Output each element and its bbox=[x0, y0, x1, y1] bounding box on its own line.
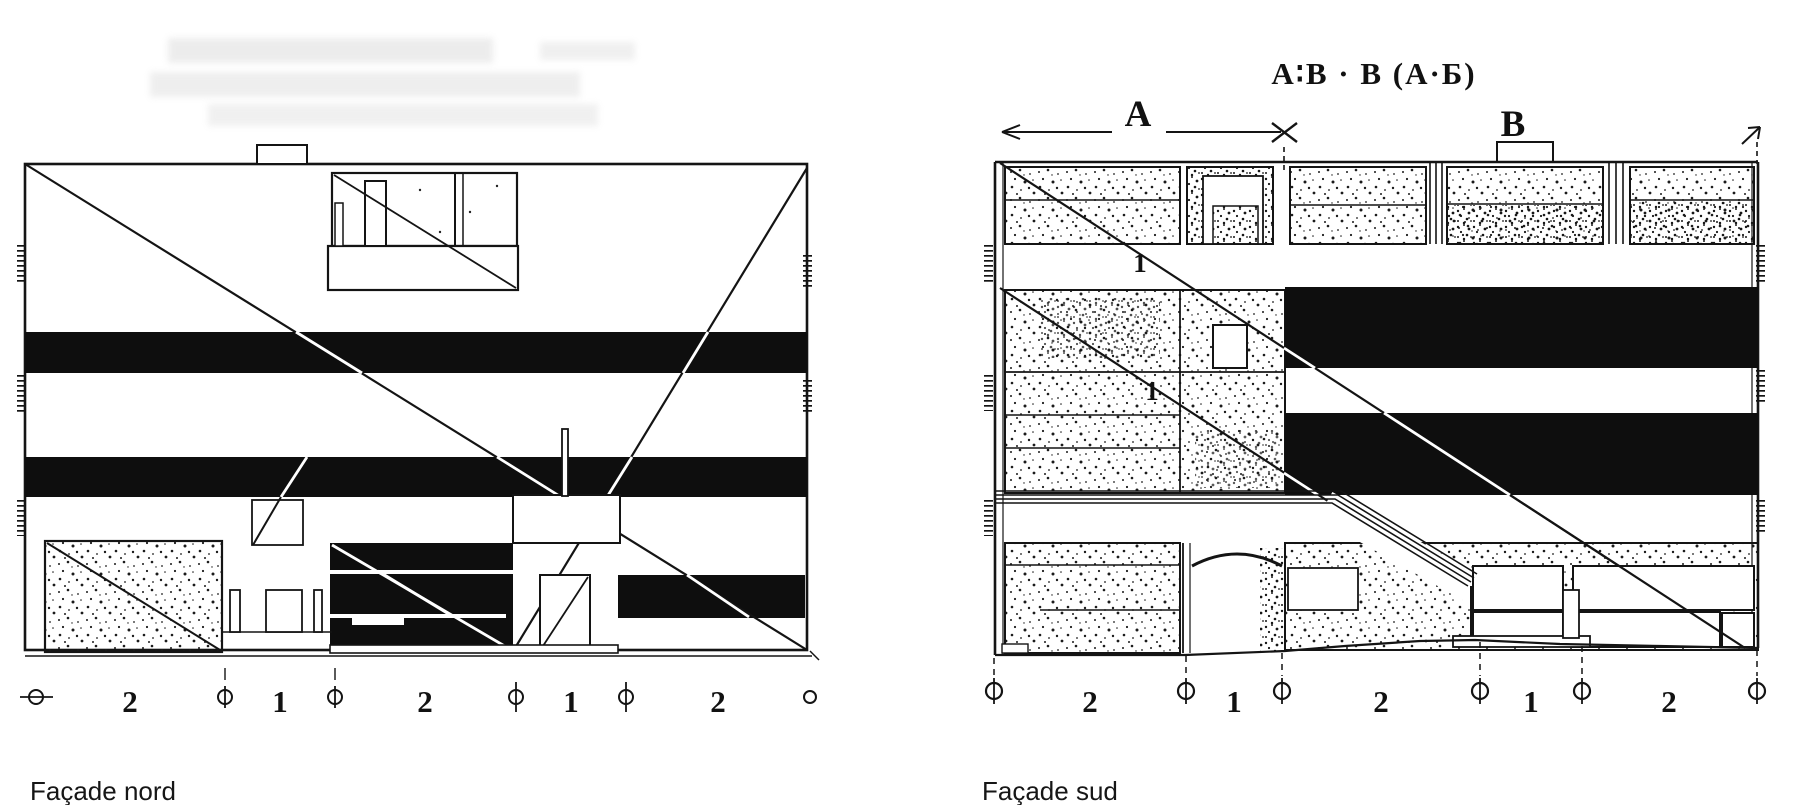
proportion-formula: A∶B · B (A·Б) bbox=[1271, 56, 1476, 91]
dimension-marker bbox=[328, 686, 342, 708]
dimension-label: 1 bbox=[1523, 684, 1539, 719]
window-band-upper bbox=[1285, 287, 1758, 368]
dimension-marker bbox=[20, 690, 53, 704]
dimension-label: 2 bbox=[1373, 684, 1389, 719]
window-band-lower bbox=[25, 457, 807, 497]
span-b-label: B bbox=[1501, 104, 1526, 145]
facade-sud-caption: Façade sud bbox=[982, 776, 1118, 805]
dimension-marker bbox=[1178, 678, 1194, 704]
dimension-marker bbox=[986, 678, 1002, 704]
middle-floors bbox=[1005, 287, 1758, 495]
secondary-diagonal bbox=[253, 497, 281, 545]
right-facade-drawing: A∶B · B (A·Б) A B bbox=[982, 56, 1765, 805]
span-a-arrow: A bbox=[1002, 94, 1297, 170]
roof-chimney bbox=[257, 145, 307, 164]
stippled-wall-panel bbox=[45, 541, 222, 652]
left-facade-drawing: 2 1 2 1 2 Façade nord bbox=[17, 145, 819, 805]
entry-door bbox=[540, 575, 590, 648]
window-band-upper bbox=[25, 332, 807, 373]
ground-post bbox=[1563, 590, 1579, 638]
small-window bbox=[1213, 325, 1247, 368]
corner-arrow bbox=[1742, 127, 1760, 164]
diagonal-label: 1 bbox=[1133, 248, 1147, 278]
dimension-label: 2 bbox=[710, 684, 726, 719]
facade-nord-caption: Façade nord bbox=[30, 776, 176, 805]
rooftop-penthouse bbox=[328, 173, 518, 290]
dimension-row-nord: 2 1 2 1 2 bbox=[20, 668, 816, 719]
dimension-label: 2 bbox=[417, 684, 433, 719]
dimension-label: 2 bbox=[1661, 684, 1677, 719]
dimension-label: 2 bbox=[122, 684, 138, 719]
window-band-lower bbox=[1285, 413, 1758, 495]
dimension-marker bbox=[1472, 678, 1488, 704]
roof-chimney bbox=[1497, 142, 1553, 162]
dimension-marker bbox=[509, 682, 523, 712]
flag-pole bbox=[562, 429, 568, 496]
attic-glazing-row bbox=[1005, 162, 1754, 244]
dimension-marker bbox=[1749, 678, 1765, 704]
dimension-marker bbox=[619, 682, 633, 712]
diagonal-label: 1 bbox=[1145, 376, 1159, 406]
dimension-label: 1 bbox=[1226, 684, 1242, 719]
arch-jamb bbox=[1260, 548, 1284, 652]
dimension-marker bbox=[804, 691, 816, 703]
dimension-marker bbox=[218, 686, 232, 708]
dimension-marker bbox=[1574, 678, 1590, 704]
regulating-box bbox=[252, 500, 303, 545]
span-b-label-group: B bbox=[1497, 104, 1553, 162]
dimension-label: 1 bbox=[272, 684, 288, 719]
architectural-figure: 2 1 2 1 2 Façade nord A∶B · B (A·Б) A B bbox=[0, 0, 1800, 805]
entry-posts bbox=[222, 590, 332, 632]
facade-diagrams-svg: 2 1 2 1 2 Façade nord A∶B · B (A·Б) A B bbox=[0, 0, 1800, 805]
dimension-label: 1 bbox=[563, 684, 579, 719]
span-a-label: A bbox=[1125, 94, 1152, 135]
scan-ghost-artifact bbox=[150, 38, 635, 126]
dimension-label: 2 bbox=[1082, 684, 1098, 719]
terrace-window bbox=[513, 495, 620, 543]
dimension-marker bbox=[1274, 678, 1290, 704]
